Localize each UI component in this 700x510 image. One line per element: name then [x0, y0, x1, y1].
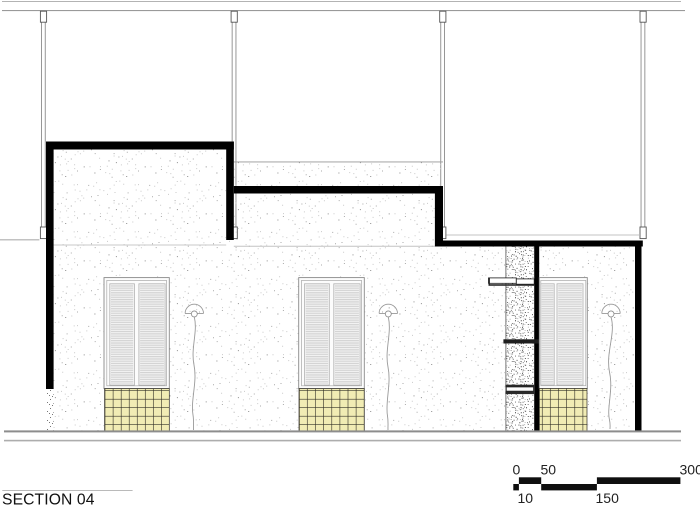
- svg-text:0: 0: [513, 461, 521, 477]
- svg-text:150: 150: [596, 490, 620, 506]
- svg-text:300: 300: [680, 461, 700, 477]
- svg-text:50: 50: [541, 461, 557, 477]
- svg-text:SECTION 04: SECTION 04: [2, 492, 95, 509]
- svg-text:10: 10: [518, 490, 534, 506]
